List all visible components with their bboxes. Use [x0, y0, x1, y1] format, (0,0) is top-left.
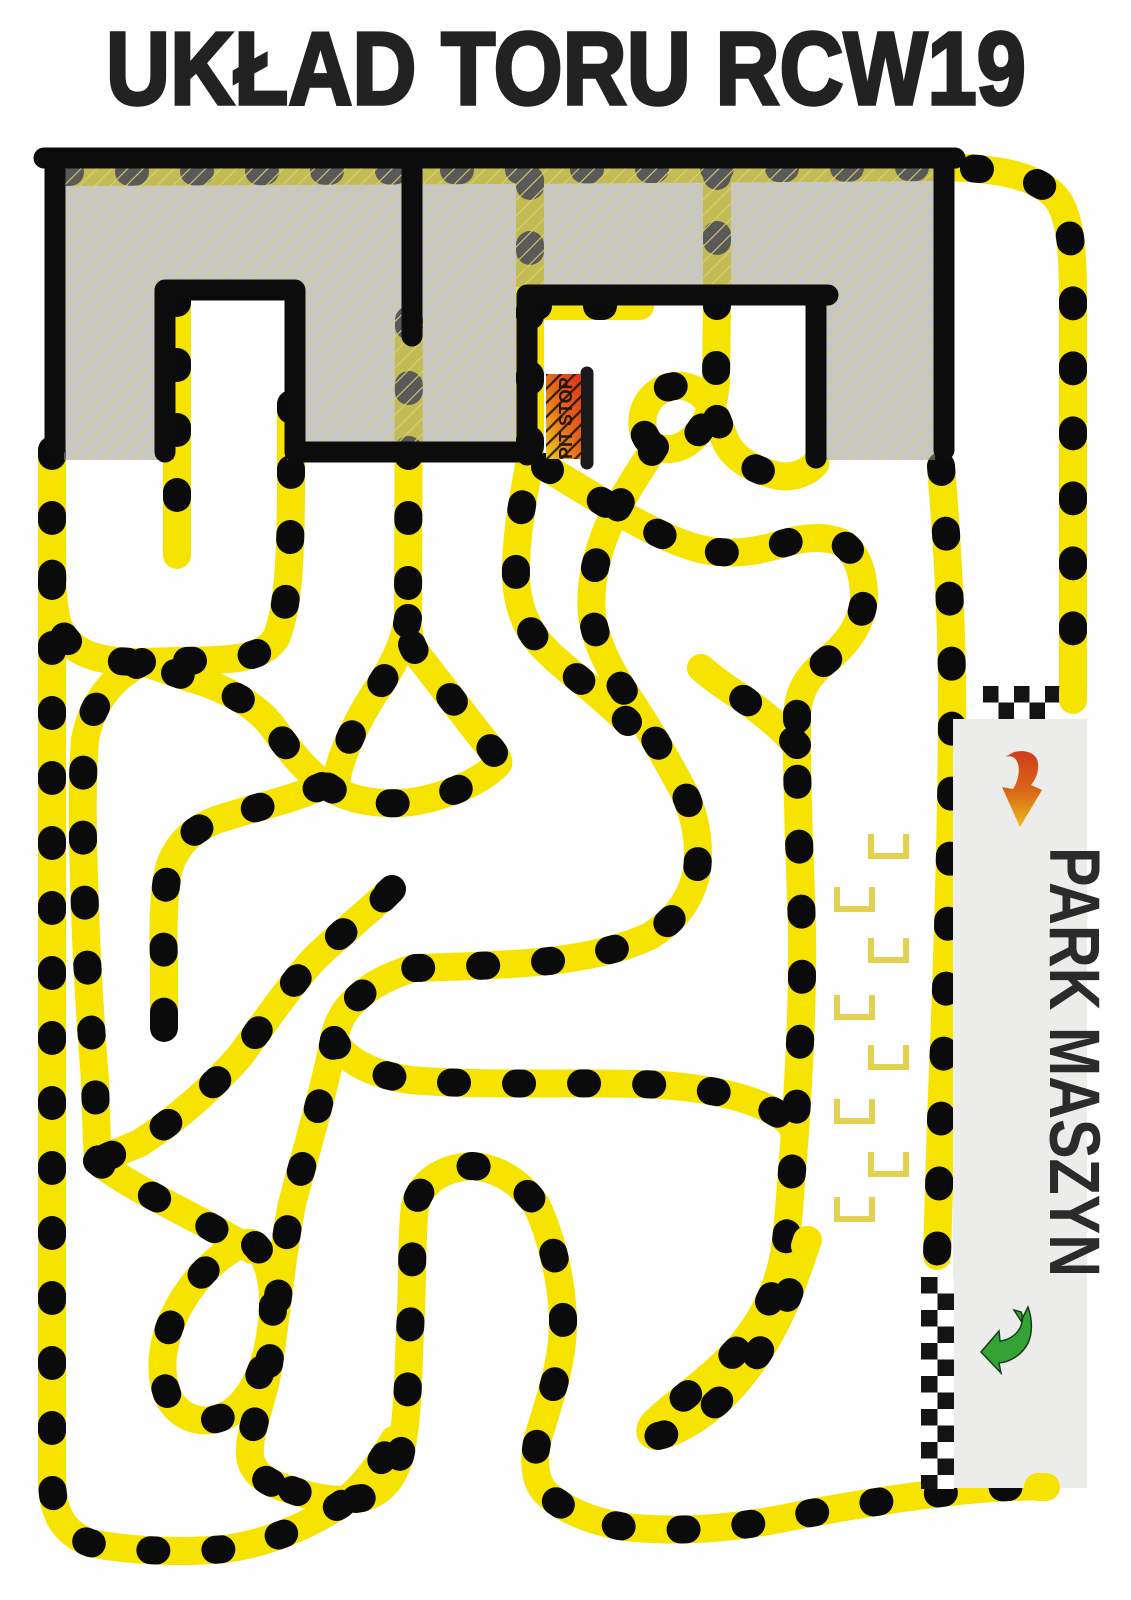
- svg-text:PARK MASZYN: PARK MASZYN: [1034, 847, 1113, 1277]
- svg-text:PIT STOP: PIT STOP: [556, 377, 576, 459]
- svg-text:UKŁAD TORU RCW19: UKŁAD TORU RCW19: [106, 11, 1026, 126]
